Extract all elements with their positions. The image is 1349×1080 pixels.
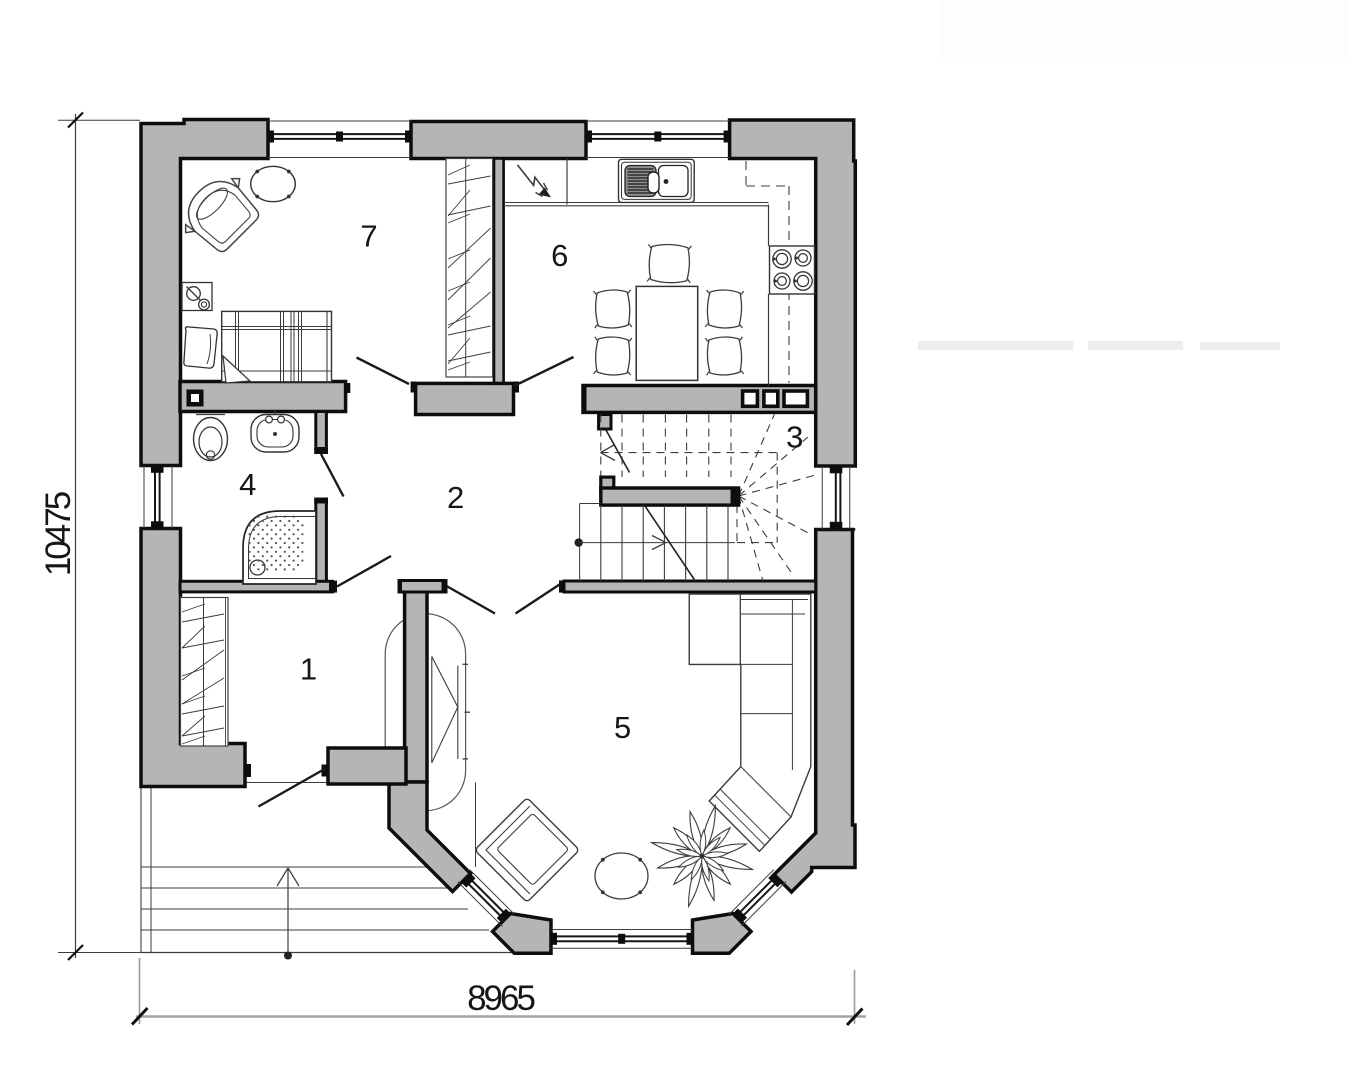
svg-text:1: 1 [300,652,317,687]
svg-text:3: 3 [786,420,803,455]
svg-text:8965: 8965 [467,979,534,1018]
svg-text:10475: 10475 [39,492,78,576]
svg-text:5: 5 [614,710,631,745]
svg-text:4: 4 [239,467,256,502]
svg-text:2: 2 [447,480,464,515]
svg-text:6: 6 [551,238,568,273]
svg-text:7: 7 [360,219,377,254]
